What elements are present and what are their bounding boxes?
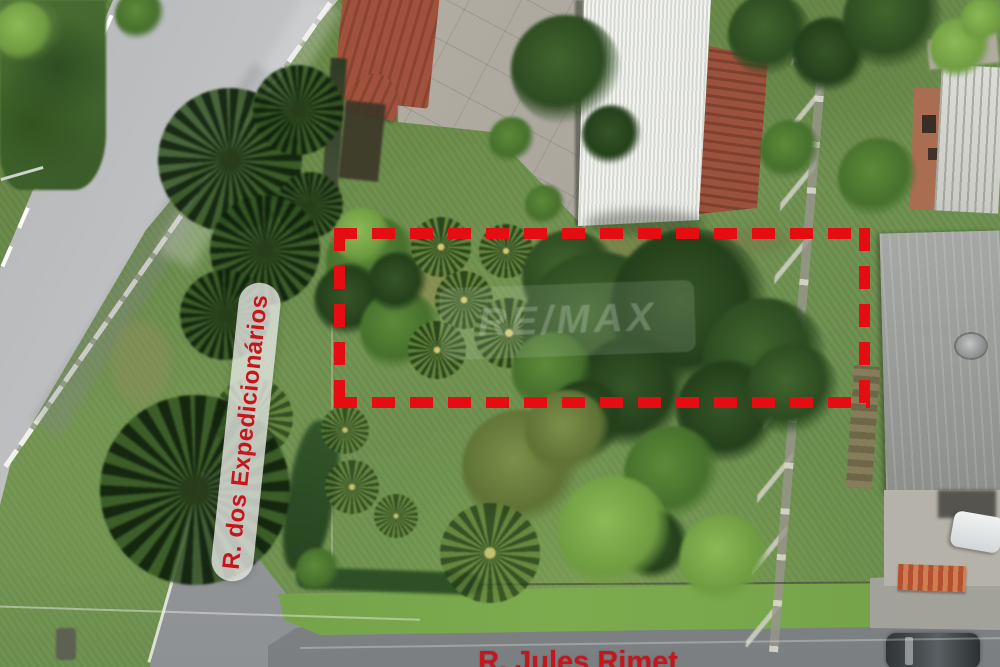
brick-house-window xyxy=(922,115,936,133)
aerial-photo: RE/MAX R. dos Expedicionários R. Jules R… xyxy=(0,0,1000,667)
tree-canopy xyxy=(680,514,768,602)
bush xyxy=(525,185,565,225)
dark-car-windshield xyxy=(905,637,913,665)
palm-tree xyxy=(325,460,379,514)
porch-shadow xyxy=(338,100,386,182)
tree-canopy xyxy=(760,120,820,180)
lot-outline-top xyxy=(334,228,870,239)
watermark-text: RE/MAX xyxy=(477,294,658,345)
brick-pile xyxy=(898,564,967,592)
bush xyxy=(296,548,340,592)
fern-palm xyxy=(440,503,540,603)
lot-outline-right xyxy=(859,228,870,408)
palm-tree xyxy=(253,65,343,155)
watermark: RE/MAX xyxy=(439,280,696,361)
banana-plant xyxy=(961,0,1000,42)
tree-canopy xyxy=(558,476,670,588)
tree-canopy xyxy=(582,105,642,165)
storm-drain xyxy=(56,628,76,660)
water-tank xyxy=(956,334,986,358)
tree-canopy xyxy=(747,344,839,436)
yucca-palm xyxy=(411,217,471,277)
brick-house-metal-roof xyxy=(934,64,1000,213)
lot-outline-bottom xyxy=(334,397,870,408)
street-label-bottom: R. Jules Rimet xyxy=(468,646,688,667)
palm-tree xyxy=(321,406,369,454)
dry-grass-patch xyxy=(112,320,170,405)
tree-canopy xyxy=(838,138,918,218)
lot-outline-left xyxy=(334,228,345,408)
shed-metal-roof xyxy=(880,230,1000,495)
bush xyxy=(489,117,535,163)
palm-tree xyxy=(374,494,418,538)
